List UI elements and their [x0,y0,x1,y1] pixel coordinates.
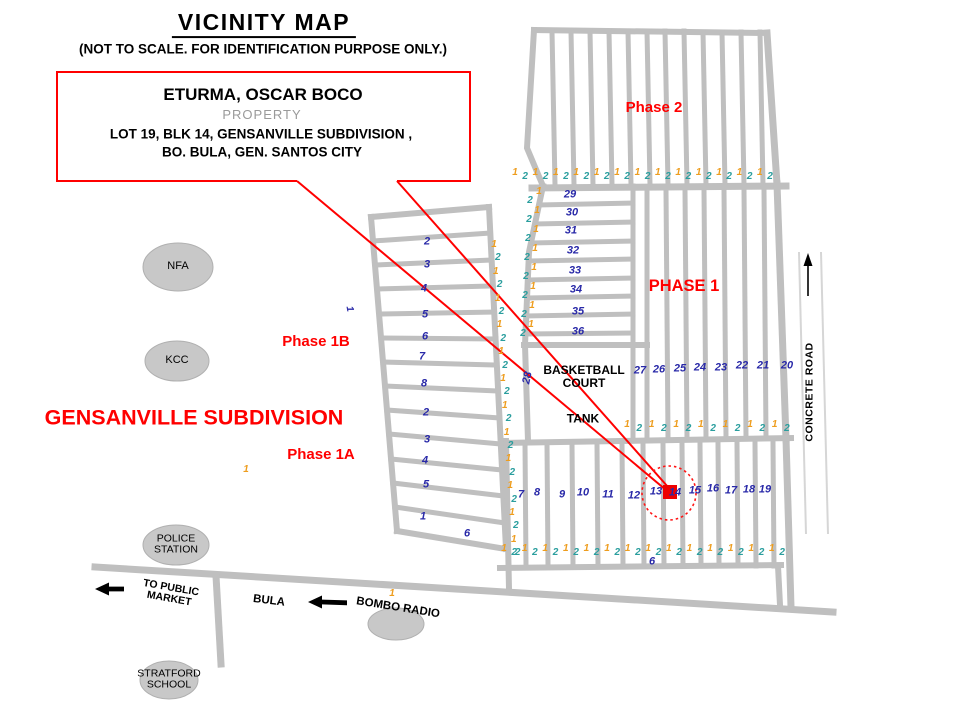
lot-count-mark: 36 [572,327,584,338]
lot-count-mark: 2 [637,424,643,434]
lot-count-mark: 1 [502,401,508,411]
lot-count-mark: 1 [528,320,534,330]
lot-count-mark: 13 [650,487,662,498]
lot-count-mark: 31 [565,226,577,237]
lot-count-mark: 2 [522,291,528,301]
lot-count-mark: 1 [584,544,590,554]
lot-count-mark: 2 [710,424,716,434]
lot-count-mark: 23 [715,363,727,374]
lot-count-mark: 1 [624,420,630,430]
lot-count-mark: 1 [563,544,569,554]
lot-count-mark: 2 [502,361,508,371]
lot-count-mark: 1 [614,168,620,178]
lot-count-mark: 1 [687,544,693,554]
lot-count-mark: 22 [736,361,748,372]
lot-count-mark: 2 [784,424,790,434]
lot-count-mark: 3 [424,260,430,271]
lot-count-mark: 1 [531,263,537,273]
lot-count-mark: 17 [725,486,737,497]
lot-count-mark: 2 [779,548,785,558]
basketball-court-label: BASKETBALL COURT [543,364,624,390]
lot-count-mark: 2 [508,441,514,451]
property-owner: ETURMA, OSCAR BOCO [163,86,362,104]
lot-count-mark: 2 [760,424,766,434]
lot-count-mark: 1 [737,168,743,178]
lot-count-mark: 2 [525,234,531,244]
lot-count-mark: 1 [509,508,515,518]
lot-count-mark: 34 [570,285,582,296]
lot-count-mark: 18 [743,485,755,496]
lot-count-mark: 35 [572,307,584,318]
lot-count-mark: 1 [757,168,763,178]
lot-count-mark: 2 [504,387,510,397]
lot-count-mark: 9 [559,490,565,501]
lot-count-mark: 1 [769,544,775,554]
map-graphics [0,0,960,720]
road-network [95,30,833,664]
lot-count-mark: 2 [497,280,503,290]
lot-count-mark: 1 [495,294,501,304]
lot-count-mark: 1 [344,305,355,312]
lot-count-mark: 1 [511,535,517,545]
lot-count-mark: 2 [624,172,630,182]
kcc-label: KCC [165,355,188,367]
phase-2-label: Phase 2 [626,100,683,116]
lot-count-mark: 2 [584,172,590,182]
lot-count-mark: 1 [532,244,538,254]
lot-count-mark: 1 [497,320,503,330]
subdivision-name: GENSANVILLE SUBDIVISION [45,406,344,429]
lot-count-mark: 1 [529,301,535,311]
lot-count-mark: 6 [649,557,655,568]
lot-count-mark: 1 [491,240,497,250]
lot-count-mark: 1 [594,168,600,178]
lot-count-mark: 1 [666,544,672,554]
lot-count-mark: 1 [530,282,536,292]
lot-count-mark: 15 [689,486,701,497]
property-type: PROPERTY [222,108,301,122]
lot-count-mark: 7 [419,352,425,363]
lot-count-mark: 5 [423,480,429,491]
lot-count-mark: 1 [498,347,504,357]
lot-count-mark: 2 [521,310,527,320]
lot-count-mark: 2 [697,548,703,558]
to-public-market-arrow [95,583,124,596]
lot-count-mark: 3 [424,435,430,446]
lot-count-mark: 2 [594,548,600,558]
lot-count-mark: 2 [524,253,530,263]
lot-count-mark: 25 [674,364,686,375]
lot-count-mark: 1 [649,420,655,430]
lot-count-mark: 2 [686,172,692,182]
property-address-2: BO. BULA, GEN. SANTOS CITY [162,146,362,161]
nfa-label: NFA [167,261,188,273]
lot-count-mark: 10 [577,488,589,499]
lot-count-mark: 1 [512,168,518,178]
lot-count-mark: 2 [767,172,773,182]
lot-count-mark: 1 [533,225,539,235]
lot-count-mark: 8 [534,488,540,499]
lot-count-mark: 1 [625,544,631,554]
lot-count-mark: 4 [422,456,428,467]
lot-count-mark: 2 [676,548,682,558]
lot-count-mark: 1 [243,465,249,475]
lot-count-mark: 2 [738,548,744,558]
lot-count-mark: 1 [675,168,681,178]
lot-count-mark: 7 [518,490,524,501]
lot-count-mark: 2 [527,196,533,206]
lot-count-mark: 2 [423,408,429,419]
lot-count-mark: 2 [661,424,667,434]
lot-count-mark: 2 [513,521,519,531]
lot-count-mark: 2 [515,548,521,558]
lot-count-mark: 2 [563,172,569,182]
lot-count-mark: 2 [573,548,579,558]
lot-count-mark: 2 [543,172,549,182]
lot-count-mark: 2 [532,548,538,558]
lot-count-mark: 1 [536,187,542,197]
lot-count-mark: 11 [602,490,613,501]
lot-count-mark: 1 [573,168,579,178]
lot-count-mark: 1 [673,420,679,430]
lot-count-mark: 1 [707,544,713,554]
lot-count-mark: 33 [569,266,581,277]
lot-count-mark: 2 [424,237,430,248]
lot-count-mark: 12 [628,491,640,502]
lot-count-mark: 2 [706,172,712,182]
lot-count-mark: 1 [723,420,729,430]
lot-count-mark: 6 [464,529,470,540]
lot-count-mark: 1 [747,420,753,430]
lot-count-mark: 6 [422,332,428,343]
lot-count-mark: 2 [718,548,724,558]
lot-count-mark: 2 [759,548,765,558]
lot-count-mark: 5 [422,310,428,321]
lot-count-mark: 2 [686,424,692,434]
lot-count-mark: 2 [665,172,671,182]
tank-label: TANK [567,413,599,426]
lot-count-mark: 2 [511,495,517,505]
lot-count-mark: 19 [759,485,771,496]
lot-count-mark: 27 [634,366,646,377]
lot-count-mark: 1 [635,168,641,178]
lot-count-mark: 2 [726,172,732,182]
lot-count-mark: 2 [522,172,528,182]
phase-1-label: PHASE 1 [649,278,720,296]
lot-count-mark: 1 [553,168,559,178]
lot-count-mark: 21 [757,361,769,372]
lot-count-mark: 2 [747,172,753,182]
lot-count-mark: 1 [604,544,610,554]
lot-count-mark: 2 [645,172,651,182]
lot-count-mark: 29 [564,190,576,201]
map-title: VICINITY MAP [172,10,356,38]
lot-count-mark: 24 [694,363,706,374]
property-address-1: LOT 19, BLK 14, GENSANVILLE SUBDIVISION … [110,128,412,143]
lot-count-mark: 1 [420,512,426,523]
lot-count-mark: 32 [567,246,579,257]
lot-count-mark: 2 [523,272,529,282]
lot-count-mark: 2 [506,414,512,424]
bula-west-arrow [308,596,347,609]
lot-count-mark: 1 [728,544,734,554]
lot-count-mark: 1 [696,168,702,178]
lot-count-mark: 1 [506,454,512,464]
lot-count-mark: 1 [501,544,507,554]
lot-count-mark: 1 [507,481,513,491]
lot-count-mark: 1 [533,168,539,178]
lot-count-mark: 2 [553,548,559,558]
lot-count-mark: 4 [421,284,427,295]
lot-count-mark: 1 [534,206,540,216]
police-station-label: POLICE STATION [154,534,198,557]
lot-count-mark: 26 [653,365,665,376]
lot-count-mark: 2 [604,172,610,182]
lot-count-mark: 30 [566,208,578,219]
lot-count-mark: 2 [735,424,741,434]
lot-count-mark: 1 [389,589,395,599]
concrete-road-label: CONCRETE ROAD [804,342,815,441]
lot-count-mark: 14 [669,488,681,499]
lot-count-mark: 1 [698,420,704,430]
lot-count-mark: 2 [499,307,505,317]
lot-count-mark: 1 [493,267,499,277]
lot-count-mark: 1 [522,544,528,554]
lot-count-mark: 1 [655,168,661,178]
lot-count-mark: 2 [501,334,507,344]
lot-count-mark: 1 [772,420,778,430]
lot-count-mark: 20 [781,361,793,372]
lot-count-mark: 2 [656,548,662,558]
lot-count-mark: 2 [615,548,621,558]
lot-count-mark: 2 [510,468,516,478]
lot-count-mark: 1 [542,544,548,554]
lot-count-mark: 2 [495,253,501,263]
lot-count-mark: 1 [716,168,722,178]
lot-count-mark: 1 [500,374,506,384]
lot-count-mark: 1 [504,428,510,438]
lot-count-mark: 2 [526,215,532,225]
concrete-road-arrow [804,253,813,296]
stratford-school-label: STRATFORD SCHOOL [137,669,200,692]
map-subtitle: (NOT TO SCALE. FOR IDENTIFICATION PURPOS… [79,43,447,58]
lot-count-mark: 2 [520,329,526,339]
lot-count-mark: 8 [421,379,427,390]
phase-1a-label: Phase 1A [287,447,355,463]
lot-count-mark: 1 [748,544,754,554]
lot-count-mark: 1 [645,544,651,554]
phase-1b-label: Phase 1B [282,334,350,350]
lot-count-mark: 2 [635,548,641,558]
vicinity-map: VICINITY MAP (NOT TO SCALE. FOR IDENTIFI… [0,0,960,720]
lot-count-mark: 16 [707,484,719,495]
